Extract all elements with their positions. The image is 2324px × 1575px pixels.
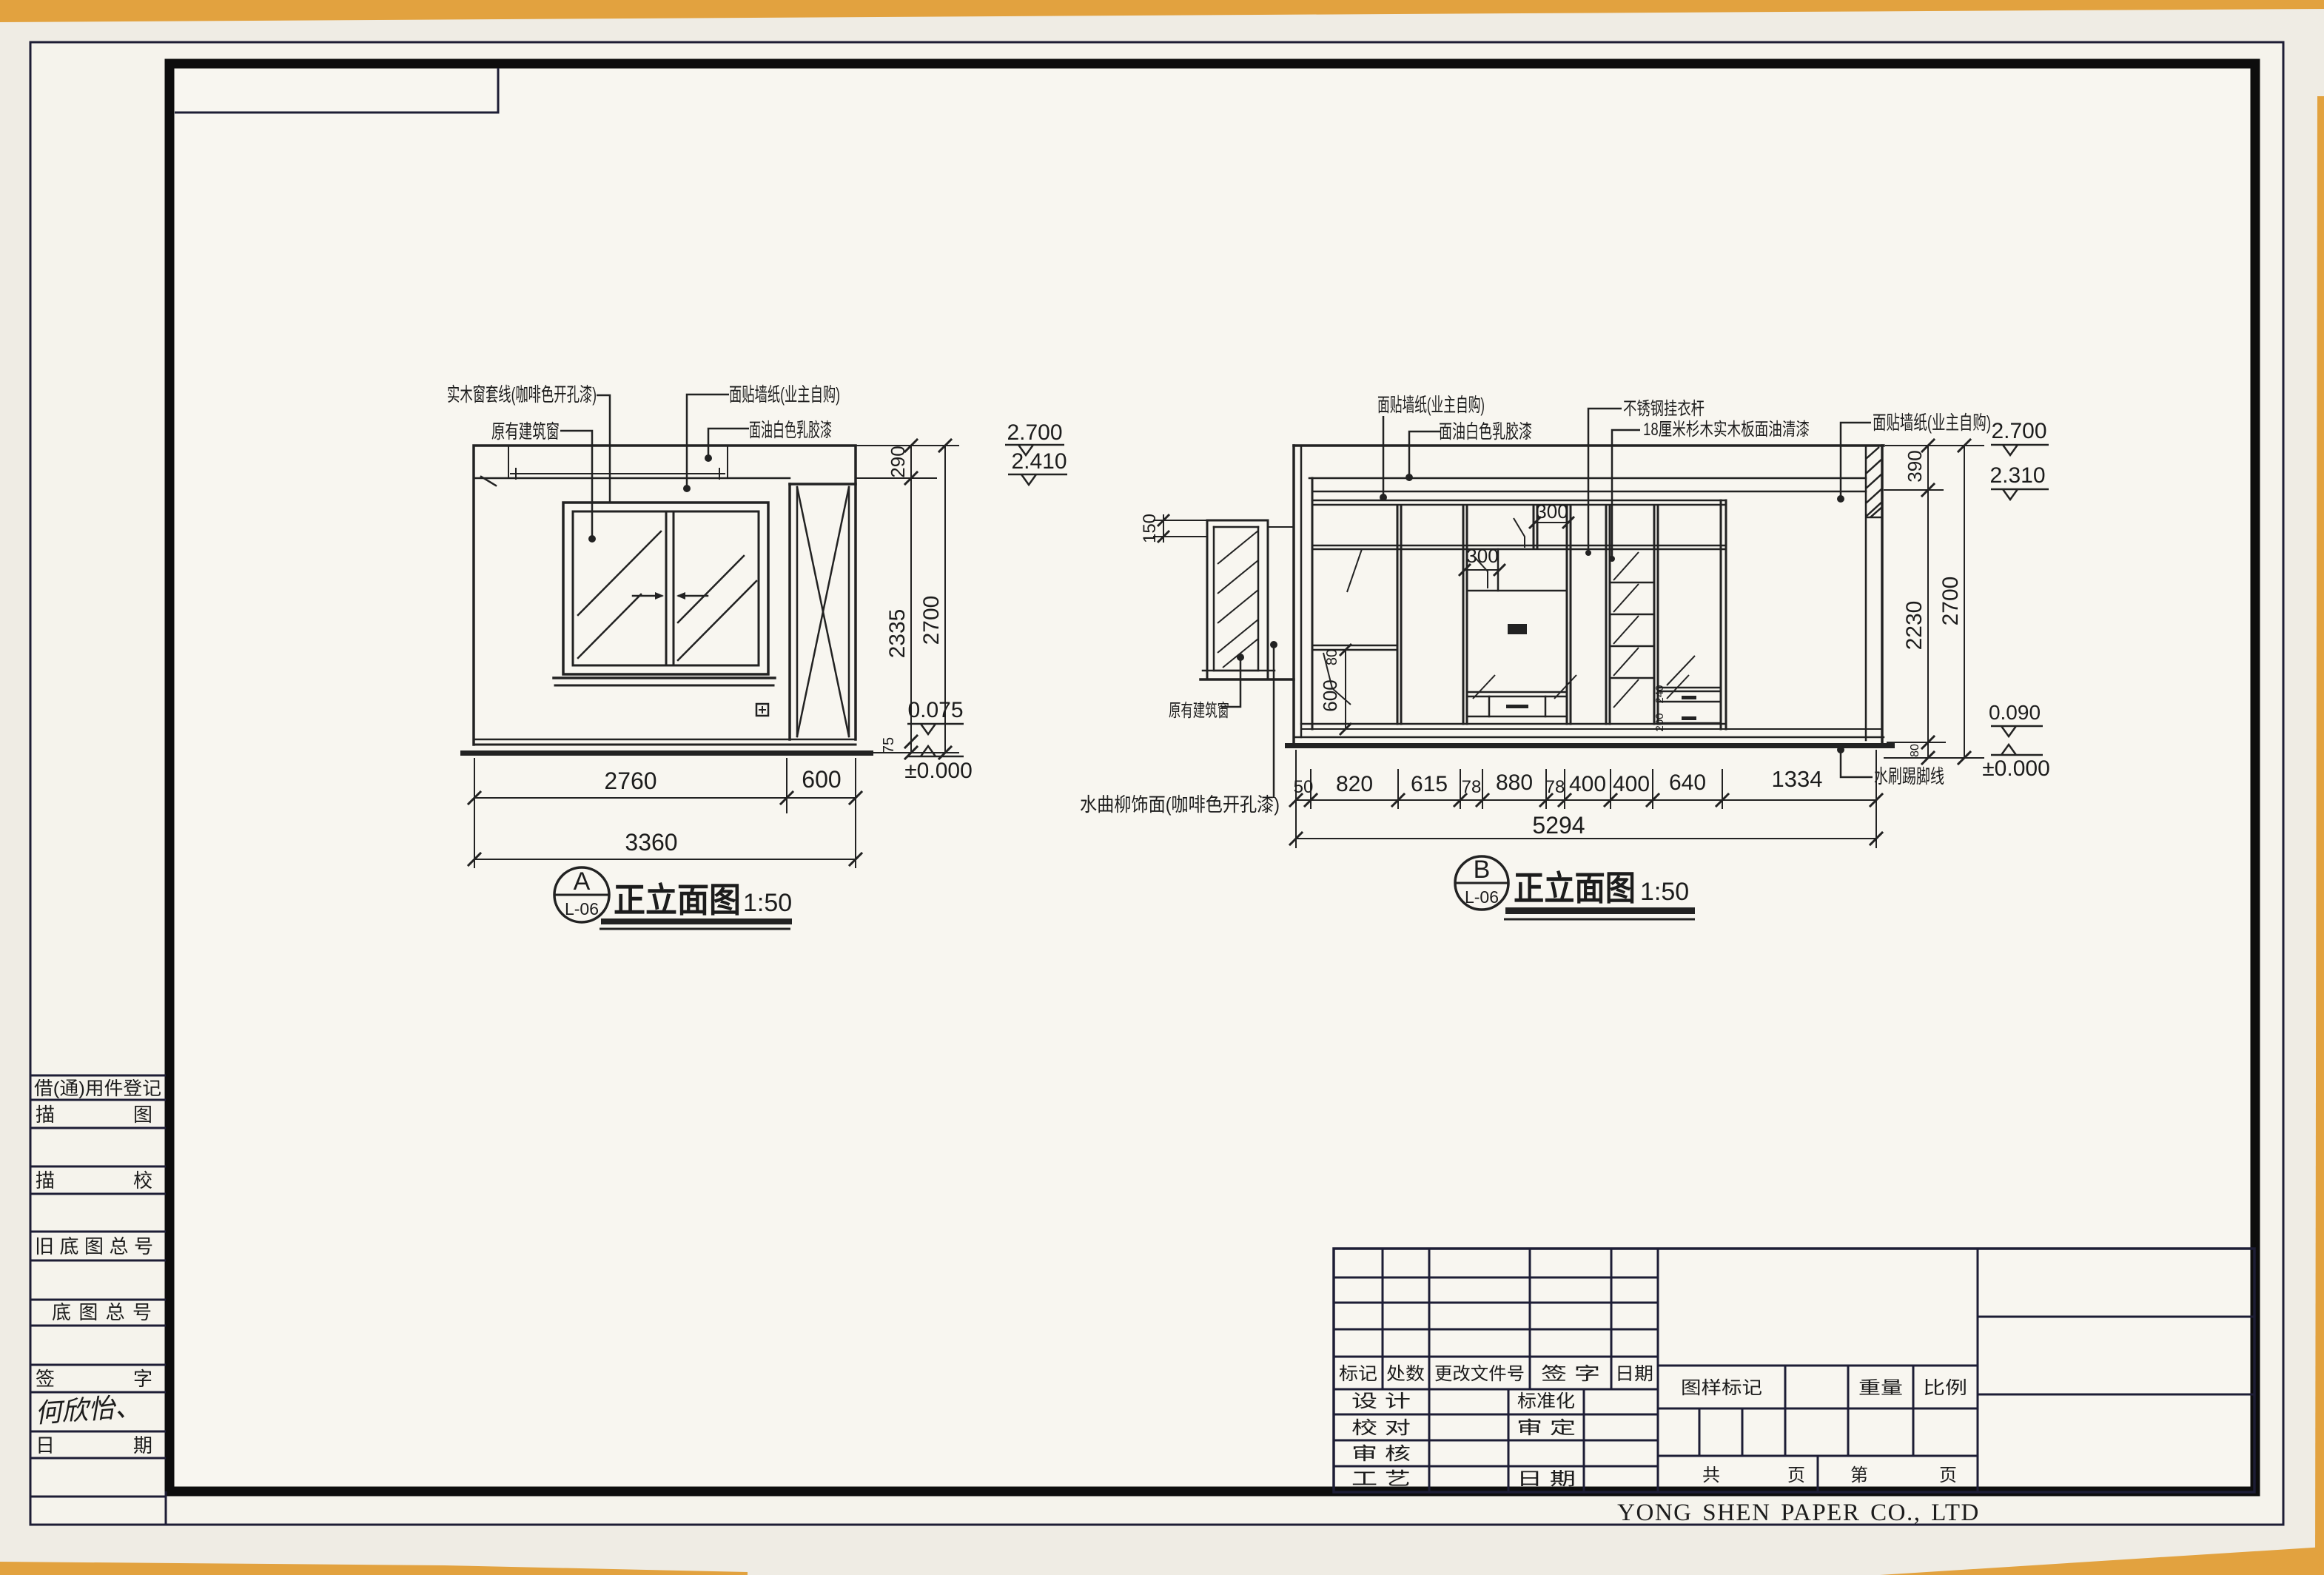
svg-text:820: 820 <box>1336 772 1373 796</box>
svg-text:50: 50 <box>1294 777 1314 797</box>
svg-text:面贴墙纸(业主自购): 面贴墙纸(业主自购) <box>1873 412 1991 434</box>
svg-text:签: 签 <box>36 1368 55 1390</box>
svg-text:L-06: L-06 <box>565 899 599 919</box>
svg-text:3360: 3360 <box>625 829 677 856</box>
svg-text:图样标记: 图样标记 <box>1681 1378 1762 1398</box>
svg-text:2230: 2230 <box>1902 601 1927 651</box>
svg-text:标记: 标记 <box>1339 1364 1377 1384</box>
svg-text:共: 共 <box>1702 1465 1720 1485</box>
svg-text:L-06: L-06 <box>1465 887 1499 907</box>
svg-text:借(通)用件登记: 借(通)用件登记 <box>34 1078 161 1099</box>
svg-text:±0.000: ±0.000 <box>1982 756 2050 781</box>
svg-text:实木窗套线(咖啡色开孔漆): 实木窗套线(咖啡色开孔漆) <box>447 383 597 406</box>
svg-text:5294: 5294 <box>1532 812 1585 839</box>
svg-text:2.700: 2.700 <box>1991 419 2046 443</box>
svg-text:设 计: 设 计 <box>1351 1391 1411 1411</box>
svg-text:2.310: 2.310 <box>1989 463 2045 488</box>
svg-text:2760: 2760 <box>604 768 656 794</box>
svg-text:400: 400 <box>1569 772 1606 796</box>
svg-text:日期: 日期 <box>1615 1364 1653 1384</box>
svg-text:400: 400 <box>1613 772 1650 796</box>
svg-text:390: 390 <box>1904 450 1926 482</box>
svg-text:日: 日 <box>36 1434 55 1457</box>
svg-text:2700: 2700 <box>919 596 944 645</box>
svg-text:正立面图: 正立面图 <box>1514 869 1636 907</box>
svg-text:18厘米杉木实木板面油清漆: 18厘米杉木实木板面油清漆 <box>1643 420 1810 440</box>
svg-text:页: 页 <box>1787 1465 1805 1485</box>
svg-text:240: 240 <box>1653 685 1666 703</box>
svg-text:更改文件号: 更改文件号 <box>1434 1364 1525 1384</box>
svg-text:水刷踢脚线: 水刷踢脚线 <box>1874 765 1944 787</box>
svg-text:600: 600 <box>802 766 841 793</box>
svg-text:面贴墙纸(业主自购): 面贴墙纸(业主自购) <box>729 383 840 406</box>
svg-text:YONG SHEN PAPER CO., LTD: YONG SHEN PAPER CO., LTD <box>1617 1500 1980 1526</box>
svg-text:80: 80 <box>1324 649 1340 665</box>
svg-text:2335: 2335 <box>885 609 910 659</box>
svg-text:78: 78 <box>1545 777 1565 797</box>
svg-text:描: 描 <box>36 1169 55 1192</box>
svg-text:原有建筑窗: 原有建筑窗 <box>491 420 560 443</box>
svg-text:原有建筑窗: 原有建筑窗 <box>1169 701 1229 721</box>
svg-text:审 定: 审 定 <box>1517 1418 1576 1438</box>
svg-text:图: 图 <box>133 1104 152 1126</box>
svg-text:880: 880 <box>1496 770 1533 795</box>
svg-text:标准化: 标准化 <box>1517 1391 1575 1411</box>
svg-text:150: 150 <box>1140 514 1160 543</box>
svg-text:0.075: 0.075 <box>907 698 963 722</box>
svg-text:正立面图: 正立面图 <box>614 881 741 919</box>
svg-text:B: B <box>1474 856 1491 884</box>
svg-text:±0.000: ±0.000 <box>904 759 973 783</box>
svg-text:旧底图总号: 旧底图总号 <box>35 1235 153 1257</box>
svg-text:不锈钢挂衣杆: 不锈钢挂衣杆 <box>1623 399 1705 419</box>
svg-text:水曲柳饰面(咖啡色开孔漆): 水曲柳饰面(咖啡色开孔漆) <box>1080 793 1280 816</box>
svg-text:日 期: 日 期 <box>1517 1469 1576 1489</box>
svg-text:审 核: 审 核 <box>1351 1444 1411 1464</box>
svg-text:校: 校 <box>133 1169 152 1192</box>
svg-text:1334: 1334 <box>1772 766 1823 792</box>
svg-text:615: 615 <box>1411 772 1448 796</box>
svg-text:描: 描 <box>36 1104 55 1126</box>
svg-text:78: 78 <box>1462 777 1482 797</box>
svg-text:2700: 2700 <box>1938 577 1963 626</box>
svg-text:1:50: 1:50 <box>1640 878 1689 906</box>
svg-text:重量: 重量 <box>1858 1378 1903 1398</box>
svg-text:第: 第 <box>1850 1465 1868 1485</box>
svg-text:2.700: 2.700 <box>1007 420 1062 445</box>
svg-text:300: 300 <box>1536 500 1568 523</box>
svg-text:80: 80 <box>1909 744 1921 757</box>
svg-text:1:50: 1:50 <box>743 889 792 917</box>
svg-text:A: A <box>574 867 591 896</box>
svg-text:工 艺: 工 艺 <box>1351 1469 1411 1489</box>
svg-text:页: 页 <box>1939 1465 1957 1485</box>
svg-text:0.090: 0.090 <box>1989 701 2041 724</box>
svg-text:处数: 处数 <box>1386 1364 1425 1384</box>
svg-text:290: 290 <box>887 446 909 477</box>
svg-text:600: 600 <box>1319 679 1341 711</box>
svg-text:字: 字 <box>133 1368 152 1390</box>
svg-text:校 对: 校 对 <box>1351 1418 1411 1438</box>
svg-text:300: 300 <box>1466 545 1498 567</box>
svg-text:面油白色乳胶漆: 面油白色乳胶漆 <box>749 419 832 441</box>
svg-text:比例: 比例 <box>1923 1378 1967 1398</box>
svg-text:面贴墙纸(业主自购): 面贴墙纸(业主自购) <box>1377 394 1485 416</box>
svg-text:640: 640 <box>1669 770 1706 795</box>
svg-text:2.410: 2.410 <box>1011 449 1067 474</box>
svg-text:签 字: 签 字 <box>1541 1364 1600 1384</box>
svg-text:面油白色乳胶漆: 面油白色乳胶漆 <box>1439 420 1532 443</box>
svg-text:75: 75 <box>881 737 897 753</box>
svg-text:200: 200 <box>1653 713 1666 731</box>
svg-text:期: 期 <box>133 1434 152 1457</box>
